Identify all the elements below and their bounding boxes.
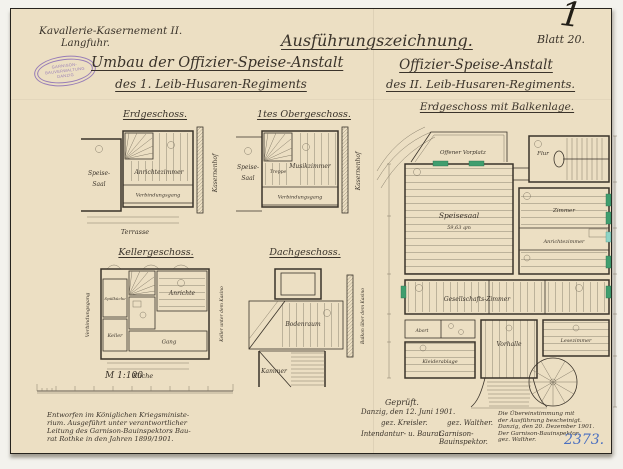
plan-obergeschoss-title: 1tes Obergeschoss. (234, 109, 374, 120)
side-label-verbindungsgang: Verbindungsgang (85, 293, 91, 338)
plan-hauptgrundriss-drawing: Offener Vorplatz Speisesaal 59,63 qm Flu… (377, 116, 617, 411)
stairwell (264, 133, 292, 161)
label-speisesaal-area: 59,63 qm (447, 225, 471, 231)
door-highlight-green (433, 161, 448, 166)
label-vorhalle: Vorhalle (496, 341, 522, 348)
lower-rooms (405, 320, 609, 378)
approval-signature-right: gez. Walther. (447, 419, 493, 427)
provenance-line3: Leitung des Garnison-Bauinspektors Bau- (47, 427, 191, 435)
archive-number: 2373. (564, 432, 604, 448)
subject-title-left-line1: Umbau der Offizier-Speise-Anstalt (91, 55, 331, 71)
room-label-verbindungsgang: Verbindungsgang (136, 193, 181, 199)
room-label-treppe: Treppe (270, 169, 287, 175)
room-number-circle (96, 146, 103, 153)
wall-stubs (236, 137, 262, 211)
spiral-stair-glyph (529, 358, 577, 406)
window-highlight-green (606, 286, 611, 298)
label-anrichtezimmer: Anrichtezimmer (543, 239, 585, 245)
label-zimmer: Zimmer (552, 208, 575, 214)
right-wing (519, 188, 609, 274)
room-label-spuelkueche: Spülküche (104, 296, 126, 301)
plan-erdgeschoss: Erdgeschoss. Speise- Saal (79, 109, 231, 241)
certification-line3: Danzig, den 20. Dezember 1901. (498, 424, 594, 431)
beam-hatch (294, 133, 336, 185)
label-speisesaal: Speisesaal (439, 211, 480, 220)
header-location-line2: Langfuhr. (61, 38, 110, 49)
header-location-line1: Kavallerie-Kasernement II. (39, 25, 182, 37)
scanned-drawing-canvas: Kavallerie-Kasernement II. Langfuhr. GAR… (0, 0, 623, 469)
label-flur: Flur (536, 151, 549, 157)
room-label-speisesaal-2: Saal (92, 181, 105, 188)
room-label-speisesaal-2: Saal (241, 175, 254, 182)
street-label: Kasernenhof (355, 150, 362, 191)
plan-kellergeschoss-drawing: Spülküche Keller Anrichte Gang Küche Ver… (77, 261, 235, 389)
plan-hauptgrundriss: Erdgeschoss mit Balkenlage. (377, 101, 617, 411)
room-label-musikzimmer: Musikzimmer (288, 163, 332, 170)
plan-hauptgrundriss-title: Erdgeschoss mit Balkenlage. (377, 101, 617, 113)
plan-obergeschoss-drawing: Speise- Saal Treppe Musikzimmer Verbindu… (234, 123, 372, 241)
plan-erdgeschoss-drawing: Speise- Saal Anrichtezimmer Verbindungsg… (79, 123, 231, 241)
terrace-lines (87, 217, 179, 223)
window-highlight-cyan (606, 232, 611, 242)
provenance-line4: rat Rothke in den Jahren 1899/1901. (47, 435, 191, 443)
label-lesezimmer: Lesezimmer (560, 338, 592, 344)
approval-signature-left: gez. Kreisler. (381, 419, 428, 427)
side-label-balkon: Balkon über dem Kasino (360, 288, 366, 345)
plan-dachgeschoss-title: Dachgeschoss. (237, 247, 373, 258)
drawing-type-title: Ausführungszeichnung. (281, 31, 466, 50)
window-highlight-green (606, 256, 611, 268)
scale-bar (33, 379, 243, 401)
approval-place-date: Danzig, den 12. Juni 1901. (361, 408, 455, 416)
provenance-line1: Entworfen im Königlichen Kriegsministe- (47, 411, 191, 419)
room-label-keller: Keller (106, 333, 123, 339)
provenance-line2: rium. Ausgeführt unter verantwortlicher (47, 419, 191, 427)
certification-line2: der Ausführung bescheinigt. (498, 418, 594, 425)
roof-block (275, 269, 321, 299)
plan-erdgeschoss-title: Erdgeschoss. (79, 109, 231, 120)
room-label-gang: Gang (162, 340, 177, 346)
room-label-anrichte: Anrichte (168, 290, 196, 297)
plan-dachgeschoss: Dachgeschoss. Bodenraum Kammer Balkon üb… (237, 247, 373, 391)
drawing-sheet: Kavallerie-Kasernement II. Langfuhr. GAR… (10, 8, 612, 454)
vorplatz-inner (415, 135, 504, 162)
keller-stair-glyph (129, 271, 155, 295)
room-number-circle (245, 148, 252, 155)
approval-role-left: Intendantur- u. Baurat. (361, 430, 444, 438)
stair-hall (529, 136, 609, 182)
plan-kellergeschoss: Kellergeschoss. Spülküche Kelle (77, 247, 235, 391)
plan-dachgeschoss-drawing: Bodenraum Kammer Balkon über dem Kasino (237, 261, 371, 389)
street-label: Kasernenhof (212, 152, 219, 193)
connector-walls (513, 168, 529, 180)
label-kleiderablage: Kleiderablage (421, 359, 457, 365)
approval-heading: Geprüft. (385, 398, 419, 407)
dimension-chain-right (613, 136, 617, 407)
room-label-speisesaal-1: Speise- (237, 164, 259, 171)
room-number-circle (535, 141, 542, 148)
paper-fold-horizontal (11, 99, 611, 100)
subject-title-right-line1: Offizier-Speise-Anstalt (386, 57, 566, 73)
terrace-lines (107, 363, 189, 369)
room-label-bodenraum: Bodenraum (284, 321, 321, 328)
fixture (133, 301, 141, 307)
roof-slope-line2 (249, 301, 278, 339)
side-wall (342, 127, 348, 213)
label-vorplatz: Offener Vorplatz (440, 150, 486, 156)
window-highlight-green (606, 212, 611, 224)
approval-block: Geprüft. Danzig, den 12. Juni 1901. gez.… (361, 398, 511, 444)
subject-title-right-line2: des II. Leib-Husaren-Regiments. (386, 77, 566, 91)
room-label-verbindungsgang: Verbindungsgang (278, 195, 323, 201)
dimension-chain-left (387, 164, 391, 378)
note-provenance: Entworfen im Königlichen Kriegsministe- … (47, 411, 191, 443)
room-label-terrasse: Terrasse (121, 228, 149, 236)
side-wall (347, 275, 353, 357)
plan-kellergeschoss-title: Kellergeschoss. (77, 247, 235, 258)
label-abort: Abort (415, 328, 429, 334)
obergeschoss-stair-glyph (264, 133, 292, 161)
corner-mark: 1 (558, 0, 584, 33)
door-highlight-green (469, 161, 484, 166)
roof-block-inner (281, 273, 315, 295)
room-label-speisesaal-1: Speise- (88, 170, 110, 177)
archive-stamp: GARNISON- BAUVERWALTUNG DANZIG (32, 52, 97, 89)
room-number-circle (140, 312, 146, 318)
subject-title-left-line2: des 1. Leib-Husaren-Regiments (91, 77, 331, 91)
certification-line1: Die Übereinstimmung mit (498, 411, 594, 418)
erdgeschoss-stair-glyph (125, 133, 153, 159)
window-highlight-green (606, 194, 611, 206)
window-highlight-green (401, 286, 406, 298)
plan-obergeschoss: 1tes Obergeschoss. Speise- Saal Treppe M… (234, 109, 374, 241)
label-gesellschaftszimmer: Gesellschafts-Zimmer (444, 296, 511, 303)
side-label-keller: Keller unter dem Kasino (219, 286, 225, 343)
room-label-anrichtezimmer: Anrichtezimmer (133, 169, 184, 176)
room-label-kammer: Kammer (260, 368, 288, 375)
